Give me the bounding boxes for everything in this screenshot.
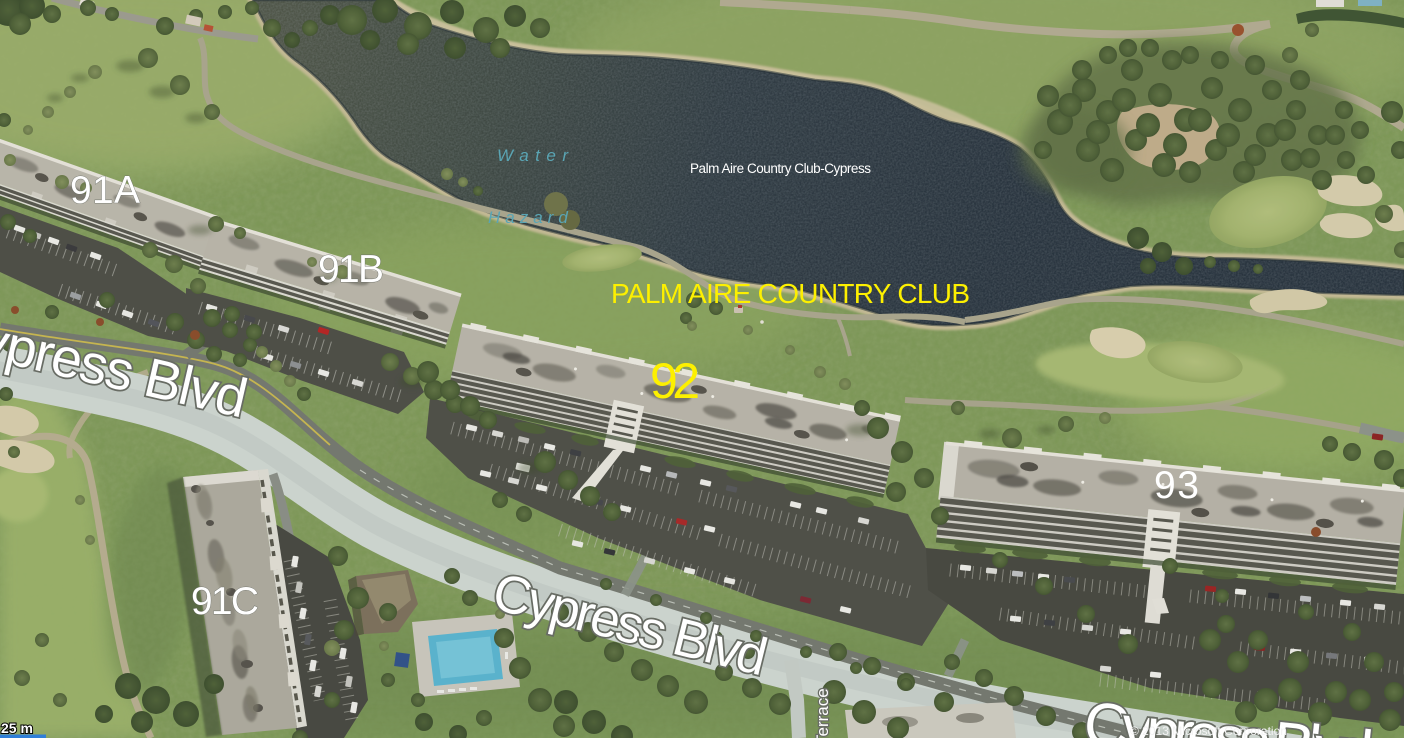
svg-text:91C: 91C <box>191 580 259 623</box>
svg-text:© 2013 Microsoft Corporation: © 2013 Microsoft Corporation <box>1130 724 1287 738</box>
svg-text:Palm Aire Country Club-Cypress: Palm Aire Country Club-Cypress <box>690 161 871 176</box>
svg-text:Water: Water <box>497 146 575 165</box>
svg-text:91B: 91B <box>318 248 384 291</box>
svg-text:93: 93 <box>1154 464 1199 507</box>
svg-text:92: 92 <box>650 353 700 409</box>
svg-text:25 m: 25 m <box>1 720 33 736</box>
svg-text:PALM AIRE COUNTRY CLUB: PALM AIRE COUNTRY CLUB <box>611 278 970 309</box>
svg-text:Terrace: Terrace <box>813 688 832 738</box>
svg-text:91A: 91A <box>70 169 140 212</box>
svg-text:Hazard: Hazard <box>488 208 573 227</box>
